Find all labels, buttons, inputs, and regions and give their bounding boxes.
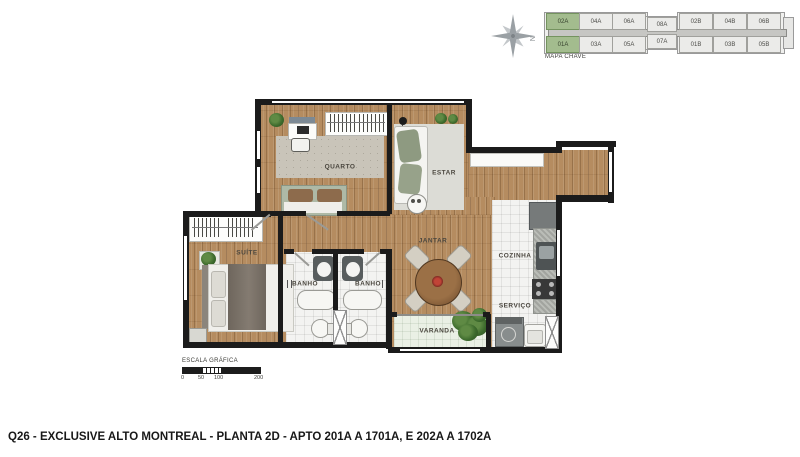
fridge — [529, 202, 558, 230]
compass-north-label: N — [528, 36, 537, 41]
wall-quarto-estar-divider — [387, 102, 392, 214]
varanda-door-stub-left — [390, 312, 397, 317]
stove-burner-4 — [549, 291, 554, 296]
quarto-pillow-right — [317, 189, 342, 202]
suite-bed-blanket — [228, 264, 266, 330]
washer-door-icon — [501, 327, 516, 342]
shower-glass-panel — [333, 310, 347, 345]
key-map-unit-01B: 01B — [679, 36, 713, 53]
estar-pendant-icon — [399, 117, 407, 125]
estar-plant-2-icon — [448, 114, 458, 124]
wall-corridor-top — [466, 147, 558, 153]
compass-rose-icon: N — [487, 10, 539, 62]
varanda-bush-3-icon — [458, 324, 478, 341]
banho1-bathtub — [297, 290, 336, 310]
scale-tick-200: 200 — [254, 375, 263, 381]
suite-pillow-2 — [211, 300, 226, 327]
key-map-unit-05A: 05A — [612, 36, 646, 53]
key-map-unit-04A: 04A — [579, 13, 613, 30]
quarto-plant-icon — [269, 113, 284, 127]
scale-bar-label: ESCALA GRÁFICA — [182, 358, 238, 364]
scale-seg-1 — [183, 368, 202, 373]
page-title: Q26 - EXCLUSIVE ALTO MONTREAL - PLANTA 2… — [8, 431, 491, 443]
wall-banho-right — [386, 249, 392, 349]
scale-bar: ESCALA GRÁFICA 0 50 100 200 — [181, 358, 291, 384]
quarto-hanger-rail — [327, 122, 385, 123]
label-quarto: QUARTO — [325, 164, 356, 171]
key-map-unit-06B: 06B — [747, 13, 781, 30]
key-map-label: MAPA CHAVE — [545, 54, 586, 60]
scale-tick-50: 50 — [198, 375, 204, 381]
washer-top-band — [495, 317, 522, 324]
stove-burner-1 — [536, 282, 541, 287]
key-map-unit-08A: 08A — [647, 17, 677, 32]
quarto-chair — [291, 138, 310, 152]
quarto-hangers-left — [330, 114, 355, 132]
scale-tick-0: 0 — [181, 375, 184, 381]
window-quarto-left-1 — [257, 131, 260, 159]
key-map-unit-05B: 05B — [747, 36, 781, 53]
scale-tick-100: 100 — [214, 375, 223, 381]
key-map-unit-02A: 02A — [546, 13, 580, 30]
window-corridor-right — [609, 152, 612, 192]
suite-hanger-rail — [192, 227, 258, 228]
entry-cabinet — [470, 153, 544, 167]
wall-bottom-left — [183, 342, 390, 348]
quarto-hangers-right — [359, 114, 385, 132]
window-corridor-top — [564, 147, 606, 150]
label-jantar: JANTAR — [419, 238, 448, 245]
key-map-unit-06A: 06A — [612, 13, 646, 30]
varanda-door-stub-right — [483, 312, 490, 317]
label-estar: ESTAR — [432, 170, 456, 177]
wall-banho-top-b — [312, 249, 364, 254]
wall-estar-right-upper — [466, 99, 472, 153]
wall-corridor-bottom — [556, 195, 614, 202]
varanda-sliding-door — [392, 314, 488, 316]
window-top-wall — [272, 101, 464, 103]
scale-seg-3 — [221, 368, 260, 373]
wall-quarto-bottom-right — [337, 211, 390, 216]
label-banho-2: BANHO — [355, 281, 381, 288]
estar-table-dot-1 — [411, 199, 415, 203]
window-varanda-bottom — [400, 349, 480, 351]
suite-pillow-1 — [211, 271, 226, 298]
estar-sofa-cushion-2 — [397, 163, 422, 195]
window-quarto-left-2 — [257, 167, 260, 193]
scale-seg-2 — [202, 368, 221, 373]
wall-suite-right — [278, 213, 283, 344]
wall-varanda-servico-divider — [486, 314, 491, 349]
banho2-bathtub — [343, 290, 382, 310]
window-kitchen-right — [557, 230, 560, 276]
key-map-unit-03B: 03B — [713, 36, 747, 53]
jantar-centerpiece-icon — [432, 276, 443, 287]
key-map-unit-07A: 07A — [647, 34, 677, 49]
laundry-tank-basin — [527, 330, 543, 344]
key-map-unit-03A: 03A — [579, 36, 613, 53]
banho2-sink-basin — [346, 262, 360, 277]
estar-side-table — [407, 194, 427, 214]
label-varanda: VARANDA — [419, 328, 454, 335]
key-map-unit-02B: 02B — [679, 13, 713, 30]
kitchen-sink-basin — [539, 246, 554, 259]
floor-plan-page: N 02A 04A 06A 08A 02B 04B 06B 01A 03A 05… — [0, 0, 800, 457]
stove-burner-3 — [536, 291, 541, 296]
key-map: N 02A 04A 06A 08A 02B 04B 06B 01A 03A 05… — [0, 0, 800, 70]
quarto-printer-icon — [297, 126, 309, 134]
estar-sofa-cushion-1 — [396, 129, 422, 164]
scale-bar-rule — [182, 367, 261, 374]
label-suite: SUÍTE — [236, 250, 257, 257]
stove-burner-2 — [549, 282, 554, 287]
window-suite-left — [184, 236, 187, 300]
label-servico: SERVIÇO — [499, 303, 531, 310]
estar-plant-1-icon — [435, 113, 447, 124]
estar-table-dot-2 — [417, 199, 421, 203]
banho1-sink-basin — [317, 262, 331, 277]
quarto-pillow-left — [288, 189, 313, 202]
wall-corridor-step-vert — [556, 141, 562, 153]
key-map-unit-01A: 01A — [546, 36, 580, 53]
key-map-unit-04B: 04B — [713, 13, 747, 30]
label-cozinha: COZINHA — [499, 253, 532, 260]
servico-door-panel — [545, 316, 559, 349]
wall-banho-top-a — [284, 249, 294, 254]
label-banho-1: BANHO — [292, 281, 318, 288]
